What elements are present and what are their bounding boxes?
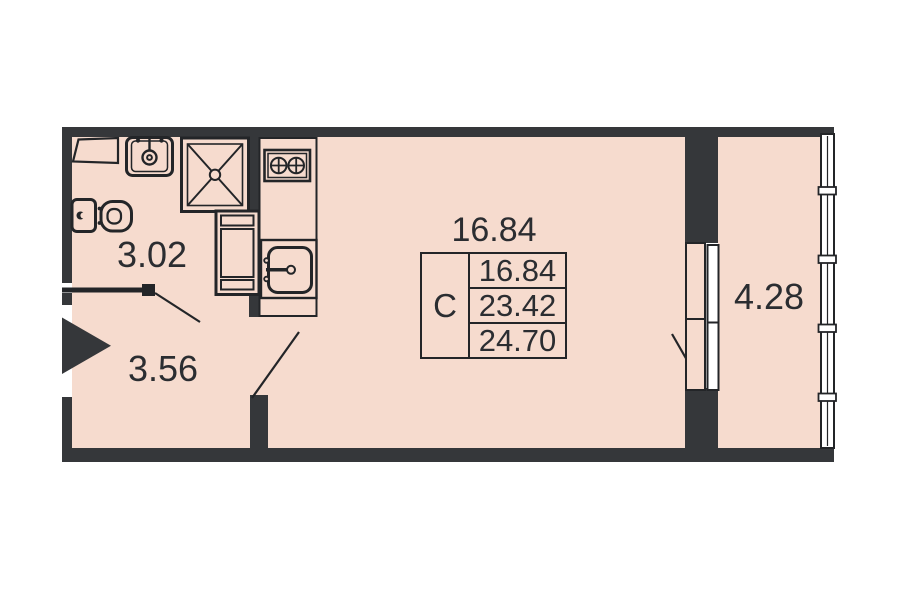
window-mullion-2	[819, 256, 837, 264]
bath-sink-icon	[127, 138, 173, 176]
window-mullion-1	[819, 187, 837, 195]
balcony-window-strip	[708, 245, 719, 390]
legend-row-1: 23.42	[469, 288, 566, 323]
legend-row-2: 24.70	[469, 323, 566, 358]
living-area-label: 16.84	[451, 213, 536, 247]
stove-icon	[265, 150, 311, 181]
balcony-door-window	[686, 243, 719, 390]
window-wall	[819, 134, 837, 448]
shower-icon	[182, 138, 249, 212]
balcony-area-label: 4.28	[734, 279, 804, 315]
hallway-wall-stub	[250, 395, 268, 448]
bottom-wall	[62, 448, 834, 462]
legend-type-cell: C	[421, 253, 469, 358]
left-wall-mid	[62, 293, 72, 305]
kitchen-fixtures	[260, 138, 317, 316]
legend-table: C 16.84 23.42 24.70	[420, 252, 567, 359]
balcony-door	[686, 243, 705, 390]
bathroom-partition-line	[62, 288, 143, 293]
cabinet-icon	[216, 211, 259, 295]
left-wall-lower	[62, 397, 72, 448]
bathroom-partition-cap	[142, 284, 155, 296]
floor-plan: 3.02 3.56 16.84 4.28 C 16.84 23.42 24.70	[0, 0, 900, 600]
shelf-icon	[73, 138, 118, 163]
balcony-wall-upper	[685, 137, 718, 243]
window-mullion-4	[819, 394, 837, 402]
legend-row-0: 16.84	[469, 253, 566, 288]
balcony-wall-lower	[685, 388, 718, 448]
window-mullion-3	[819, 325, 837, 333]
kitchen-sink-icon	[264, 248, 311, 293]
main-floor	[72, 137, 685, 448]
top-wall	[62, 127, 834, 137]
bathroom-area-label: 3.02	[117, 237, 187, 273]
hallway-area-label: 3.56	[128, 351, 198, 387]
